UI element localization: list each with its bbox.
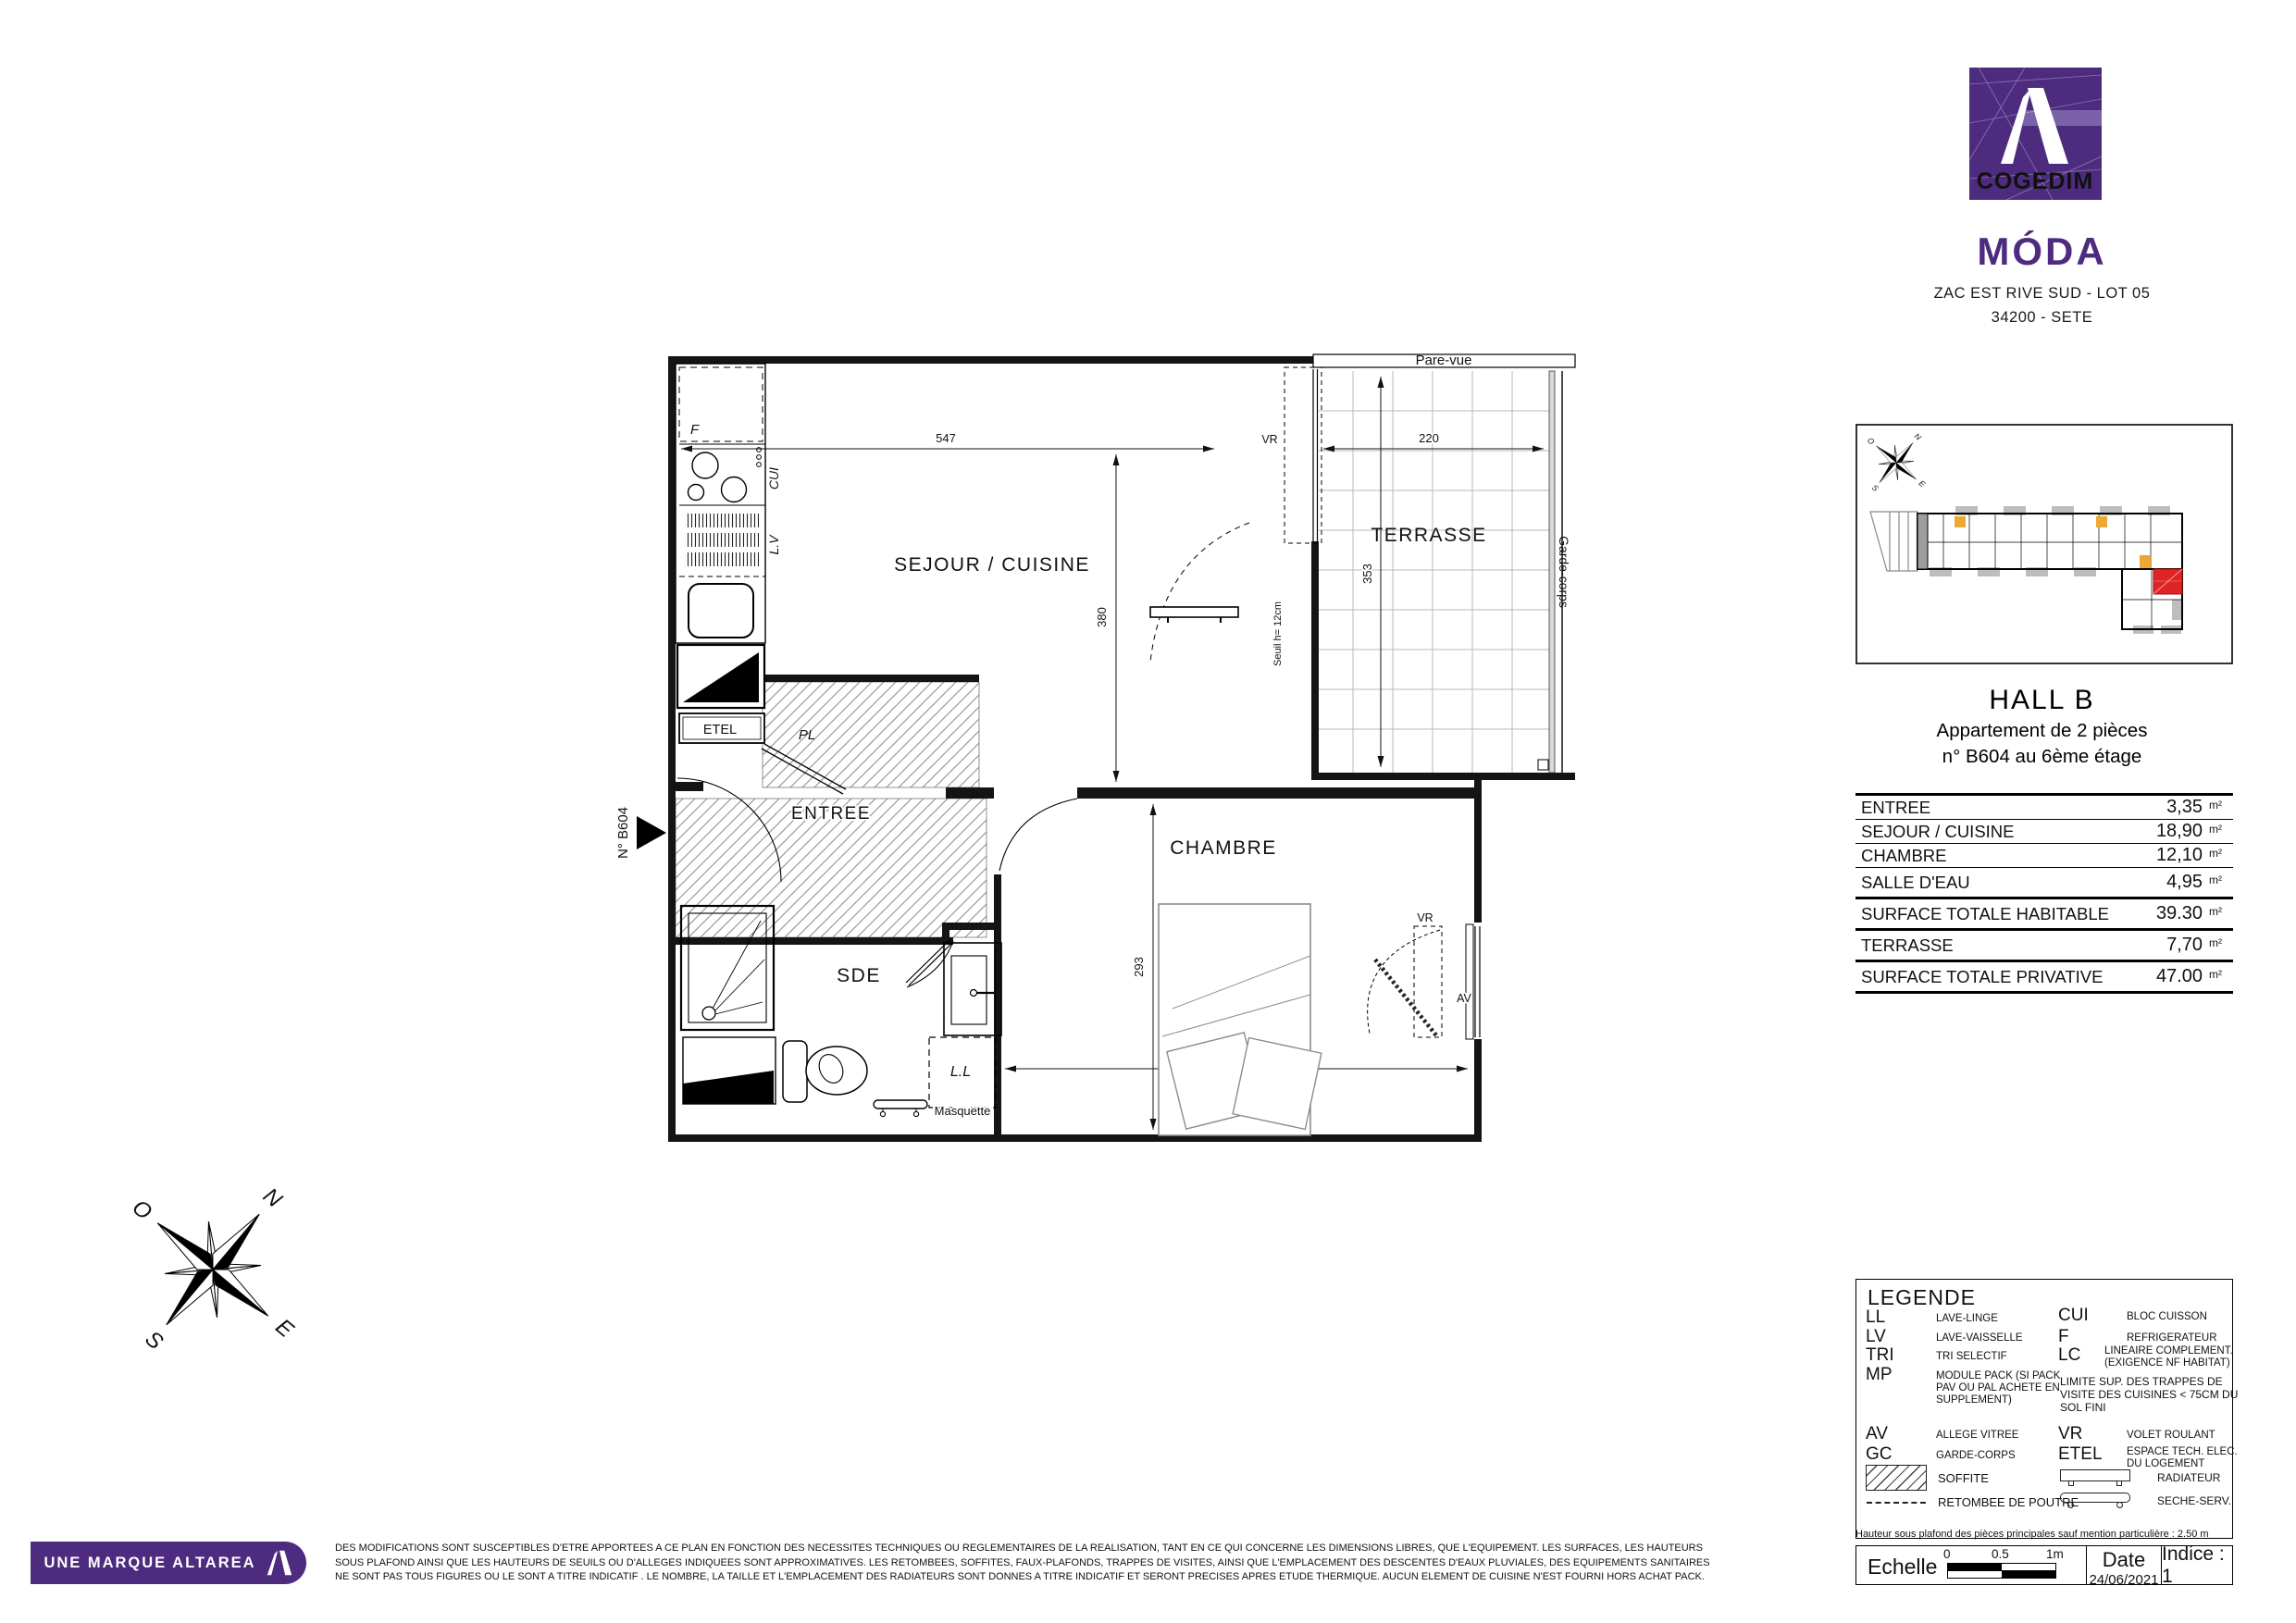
table-row-total-habitable: SURFACE TOTALE HABITABLE 39.30 m² — [1855, 899, 2233, 931]
garde-corps-label: Garde-corps — [1557, 536, 1571, 608]
legend-label: GARDE-CORPS — [1936, 1450, 2016, 1462]
legend-abbr: VR — [2058, 1424, 2082, 1444]
unit-type: Appartement de 2 pièces — [1851, 718, 2233, 744]
towel-dryer — [874, 1100, 927, 1117]
fridge: F — [679, 367, 763, 441]
legend-title: LEGENDE — [1868, 1285, 1976, 1310]
unit-entrance-marker: N° B604 — [615, 807, 666, 859]
legend-label: LAVE-LINGE — [1936, 1313, 1998, 1325]
compass-south: S — [141, 1326, 168, 1355]
table-row: CHAMBRE 12,10 m² — [1855, 844, 2233, 868]
legend-label: ESPACE TECH. ELEC. DU LOGEMENT — [2127, 1446, 2238, 1470]
table-row: ENTREE 3,35 m² — [1855, 796, 2233, 820]
altarea-a-icon — [266, 1550, 293, 1576]
sink — [689, 584, 753, 638]
disclaimer-line: SOUS PLAFOND AINSI QUE LES HAUTEURS DE S… — [335, 1556, 1834, 1571]
title-strip: Echelle 0 0.5 1m Date 24/06/2021 Indice … — [1855, 1545, 2233, 1585]
scale-bar — [1947, 1563, 2056, 1579]
legend-abbr: CUI — [2058, 1306, 2089, 1326]
masquette-label: Masquette — [935, 1104, 991, 1118]
floor-plan: Pare-vue Garde-corps TERRASSE 220 353 SE… — [611, 352, 1592, 1166]
room-label-sde: SDE — [837, 965, 881, 986]
legend-abbr: LC — [2058, 1345, 2080, 1366]
altarea-banner: UNE MARQUE ALTAREA — [31, 1542, 306, 1584]
etel-box: ETEL — [679, 713, 764, 743]
indice-cell: Indice : 1 — [2162, 1546, 2232, 1584]
legend-box: LEGENDE LL LAVE-LINGE LV LAVE-VAISSELLE … — [1855, 1279, 2233, 1539]
legend-label: REFRIGERATEUR — [2127, 1332, 2217, 1344]
washing-machine: L.L — [929, 1037, 996, 1108]
cogedim-logo-text: COGEDIM — [1977, 168, 2093, 194]
project-title: MÓDA — [1851, 229, 2233, 274]
cooktop — [689, 448, 762, 502]
chambre: CHAMBRE 293 394 VR AV — [1005, 804, 1480, 1135]
disclaimer: DES MODIFICATIONS SONT SUSCEPTIBLES D'ET… — [335, 1542, 1834, 1585]
pare-vue-label: Pare-vue — [1416, 353, 1472, 368]
washing-machine-label: L.L — [950, 1064, 971, 1080]
etel-label: ETEL — [703, 723, 737, 737]
soffite-label: SOFFITE — [1938, 1472, 1989, 1484]
fridge-label: F — [690, 422, 700, 438]
legend-abbr: LV — [1866, 1327, 1886, 1347]
legend-abbr: AV — [1866, 1424, 1888, 1444]
radiator — [1150, 607, 1238, 623]
toilet — [783, 1041, 867, 1102]
legend-label: VOLET ROULANT — [2127, 1430, 2215, 1442]
vr-chambre-label: VR — [1417, 911, 1433, 924]
dim-chambre-depth: 293 — [1132, 957, 1146, 977]
chambre-window: VR AV — [1368, 911, 1480, 1039]
retombee-label: RETOMBEE DE POUTRE — [1938, 1496, 2079, 1508]
locator-selected-unit — [2153, 569, 2182, 594]
legend-label: LAVE-VAISSELLE — [1936, 1332, 2023, 1344]
legend-limite-note: LIMITE SUP. DES TRAPPES DE VISITE DES CU… — [2060, 1375, 2238, 1414]
unit-subtitle: Appartement de 2 pièces n° B604 au 6ème … — [1851, 718, 2233, 769]
table-row: TERRASSE 7,70 m² — [1855, 931, 2233, 962]
date-label: Date — [2087, 1548, 2161, 1572]
garde-corps-rail — [1549, 371, 1555, 773]
duct-shaft — [677, 645, 764, 708]
scale-cell: Echelle 0 0.5 1m — [1856, 1546, 2087, 1584]
bed — [1159, 904, 1322, 1135]
terrace: Pare-vue Garde-corps TERRASSE 220 353 — [1313, 353, 1575, 773]
legend-abbr: TRI — [1866, 1345, 1894, 1366]
legend-label: ALLEGE VITREE — [1936, 1430, 2018, 1442]
hall-title: HALL B — [1851, 685, 2233, 716]
seuil-label: Seuil h= 12cm — [1272, 601, 1284, 666]
dim-terrasse-width: 220 — [1419, 431, 1439, 445]
av-label: AV — [1457, 992, 1471, 1005]
table-row: SEJOUR / CUISINE 18,90 m² — [1855, 820, 2233, 844]
legend-abbr: F — [2058, 1327, 2069, 1347]
scale-tick: 0 — [1943, 1547, 1951, 1561]
legend-label: BLOC CUISSON — [2127, 1311, 2207, 1323]
room-label-entree: ENTREE — [791, 804, 871, 824]
seche-label: SECHE-SERV. — [2157, 1495, 2231, 1507]
sde-door-leaf — [906, 939, 953, 985]
retombee-line-icon — [1867, 1502, 1926, 1504]
table-row-total-privative: SURFACE TOTALE PRIVATIVE 47.00 m² — [1855, 962, 2233, 994]
unit-door-number: N° B604 — [615, 807, 631, 859]
terrace-window: VR Seuil h= 12cm — [1150, 367, 1322, 666]
date-cell: Date 24/06/2021 — [2087, 1546, 2162, 1584]
legend-label: LINEAIRE COMPLEMENT. (EXIGENCE NF HABITA… — [2104, 1345, 2233, 1369]
cogedim-logo-icon: COGEDIM — [1969, 68, 2102, 200]
date-value: 24/06/2021 — [2087, 1572, 2161, 1588]
towel-dryer-icon — [2060, 1493, 2130, 1503]
unit-number: n° B604 au 6ème étage — [1851, 744, 2233, 770]
legend-abbr: ETEL — [2058, 1444, 2103, 1465]
scale-label: Echelle — [1868, 1555, 1937, 1580]
areas-table: ENTREE 3,35 m² SEJOUR / CUISINE 18,90 m²… — [1855, 793, 2233, 994]
compass-west: O — [127, 1195, 156, 1225]
address-line-2: 34200 - SETE — [1851, 306, 2233, 330]
compass-rose-icon: N E S O — [120, 1177, 305, 1362]
soffite-swatch-icon — [1866, 1465, 1927, 1491]
room-label-terrasse: TERRASSE — [1371, 525, 1486, 546]
legend-label: TRI SELECTIF — [1936, 1351, 2007, 1363]
legend-label: MODULE PACK (SI PACK PAV OU PAL ACHETE E… — [1936, 1370, 2060, 1406]
dim-sejour-depth: 380 — [1095, 607, 1109, 627]
closet-label-pl: PL — [799, 727, 815, 743]
compass-north: N — [258, 1183, 287, 1213]
vr-sejour-label: VR — [1261, 433, 1277, 446]
legend-abbr: GC — [1866, 1444, 1893, 1465]
dishwasher — [679, 514, 765, 576]
room-label-sejour: SEJOUR / CUISINE — [894, 554, 1090, 576]
washbasin — [944, 943, 1001, 1035]
room-label-chambre: CHAMBRE — [1170, 837, 1277, 859]
project-address: ZAC EST RIVE SUD - LOT 05 34200 - SETE — [1851, 282, 2233, 329]
legend-abbr: MP — [1866, 1365, 1893, 1385]
table-row: SALLE D'EAU 4,95 m² — [1855, 868, 2233, 899]
dishwasher-label: L.V — [766, 534, 781, 555]
bathroom-cabinet — [683, 1037, 776, 1104]
ceiling-height-note: Hauteur sous plafond des pièces principa… — [1855, 1529, 2233, 1540]
cogedim-logo: COGEDIM — [1969, 68, 2102, 200]
compass-east: E — [271, 1314, 299, 1344]
address-line-1: ZAC EST RIVE SUD - LOT 05 — [1851, 282, 2233, 306]
kitchen: F CUI L.V ETEL — [676, 364, 781, 743]
disclaimer-line: DES MODIFICATIONS SONT SUSCEPTIBLES D'ET… — [335, 1542, 1834, 1556]
altarea-banner-text: UNE MARQUE ALTAREA — [43, 1555, 255, 1572]
legend-abbr: LL — [1866, 1307, 1885, 1328]
radiator-label: RADIATEUR — [2157, 1472, 2220, 1484]
dim-sejour-width: 547 — [936, 431, 956, 445]
dim-terrasse-depth: 353 — [1360, 564, 1374, 584]
scale-tick: 1m — [2046, 1547, 2064, 1561]
chambre-door-swing — [999, 799, 1077, 871]
radiator-icon — [2060, 1469, 2130, 1481]
building-locator-map — [1855, 424, 2233, 664]
cooktop-label: CUI — [766, 467, 781, 489]
disclaimer-line: NE SONT PAS TOUS FIGURES OU LE SONT A TI… — [335, 1570, 1834, 1585]
scale-tick: 0.5 — [1992, 1547, 2009, 1561]
